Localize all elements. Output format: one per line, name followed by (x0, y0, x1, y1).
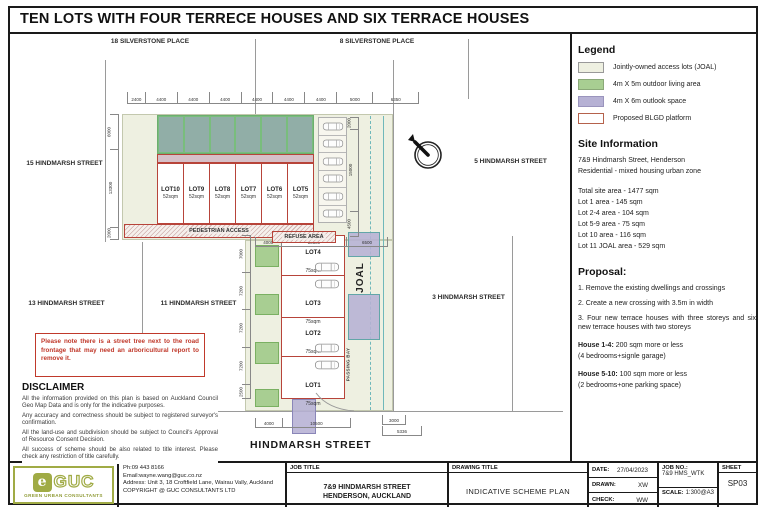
title-bar: TEN LOTS WITH FOUR TERRECE HOUSES AND SI… (10, 8, 756, 34)
lot-9: LOT952sqm (183, 164, 209, 223)
lot-name: LOT4 (305, 250, 320, 256)
house-spec-5-10: House 5-10: 100 sqm more or less (2 bedr… (578, 370, 756, 391)
dimension-label: 2000 (107, 228, 112, 238)
drawn-label: DRAWN: (592, 482, 616, 488)
dimension-label: 7200 (239, 361, 244, 371)
job-title-label: JOB TITLE (287, 463, 447, 473)
legend-heading: Legend (578, 44, 756, 56)
job-no-value: 7&9 HMS_WTK (662, 471, 714, 477)
car-icon (322, 122, 344, 131)
lot-name: LOT7 (241, 187, 256, 193)
dimension-segment: 7200 (242, 309, 251, 347)
outdoor-living-area (255, 389, 279, 407)
parking-stall (319, 118, 346, 136)
dimension-segment: 5000 (336, 92, 372, 104)
drawing-title-label: DRAWING TITLE (449, 463, 587, 473)
lot-area: 52sqm (163, 194, 178, 200)
legend-item-blgd: Proposed BLGD platform (578, 113, 756, 124)
dimension-label: 15000 (348, 164, 353, 177)
dimension-segment: 4400 (272, 92, 304, 104)
note-box: Please note there is a street tree next … (35, 333, 205, 377)
info-panel: Legend Jointly-owned access lots (JOAL) … (578, 38, 756, 393)
legend-item-outlook: 4m X 6m outlook space (578, 96, 756, 107)
outdoor-living-block (159, 117, 183, 152)
dimension-label: 6350 (373, 97, 418, 102)
blgd-swatch (578, 113, 604, 124)
check-label: CHECK: (592, 497, 615, 503)
outdoor-living-strip (157, 115, 314, 154)
dimension-segment: 2000 (350, 117, 359, 129)
lot-5: LOT552sqm (287, 164, 313, 223)
car-icon (314, 262, 340, 272)
date-label: DATE: (592, 467, 609, 473)
parking-stall (319, 136, 346, 154)
dimension-label: 3000 (383, 418, 405, 423)
outlook-space (348, 294, 380, 340)
refuse-area: REFUSE AREA (272, 231, 336, 243)
dimension-segment: 6000 (110, 114, 119, 149)
lot-name: LOT8 (215, 187, 230, 193)
dimension-col-left-upper: 6000133002000 (110, 114, 119, 240)
street-label-hindmarsh: HINDMARSH STREET (250, 439, 371, 451)
contact-address: Address: Unit 3, 18 Croftfield Lane, Wai… (123, 480, 281, 488)
dimension-col-right-upper: 2000150004500 (350, 117, 359, 237)
dimension-segment: 4400 (145, 92, 177, 104)
company-logo: GUC GREEN URBAN CONSULTANTS (13, 466, 114, 504)
legend-label: Jointly-owned access lots (JOAL) (613, 64, 716, 71)
job-title-line1: 7&9 HINDMARSH STREET (323, 483, 410, 492)
dimension-label: 2000 (347, 118, 352, 128)
joal-edge-line (383, 116, 384, 410)
panel-divider (570, 32, 572, 461)
date-value: 27/04/2023 (617, 467, 654, 474)
dimension-label: 4400 (146, 97, 177, 102)
dimension-segment: 10500 (282, 418, 351, 428)
car-icon (314, 360, 340, 370)
legend-label: Proposed BLGD platform (613, 115, 691, 122)
outdoor-living-area (255, 294, 279, 315)
boundary-line (512, 236, 513, 412)
car-icon (322, 174, 344, 183)
lot-name: LOT1 (305, 383, 320, 389)
site-area-line: Lot 1 area - 145 sqm (578, 197, 756, 208)
date-drawn-check-cell: DATE:27/04/2023 DRAWN:XW CHECK:WW (587, 463, 657, 507)
car-icon (322, 157, 344, 166)
dimension-segment: 7200 (242, 347, 251, 385)
house-spec-1-4: House 1-4: 200 sqm more or less (4 bedro… (578, 341, 756, 362)
job-title-cell: JOB TITLE 7&9 HINDMARSH STREET HENDERSON… (285, 463, 447, 507)
check-value: WW (636, 497, 654, 504)
logo-tagline: GREEN URBAN CONSULTANTS (24, 493, 103, 498)
dimension-label: 5000 (337, 97, 372, 102)
proposal-item: 1. Remove the existing dwellings and cro… (578, 284, 756, 294)
legend-item-joal: Jointly-owned access lots (JOAL) (578, 62, 756, 73)
dimension-label: 4400 (242, 97, 273, 102)
dimension-segment: 4400 (304, 92, 336, 104)
boundary-line (468, 39, 469, 99)
contact-phone: Ph:09 443 8166 (123, 465, 281, 473)
dimension-segment: 2000 (110, 227, 119, 240)
lot-area: 52sqm (293, 194, 308, 200)
dimension-segment: 3000 (382, 415, 406, 425)
job-title-line2: HENDERSON, AUCKLAND (323, 492, 411, 501)
lot-name: LOT5 (293, 187, 308, 193)
dimension-crossing-width: 3000 (382, 415, 406, 425)
dimension-segment: 6500 (346, 237, 388, 247)
joal-centerline (370, 116, 371, 410)
company-logo-cell: GUC GREEN URBAN CONSULTANTS (10, 463, 117, 507)
disclaimer-paragraph: All the land-use and subdivision should … (22, 430, 218, 445)
north-arrow-icon (406, 132, 446, 172)
dimension-segment: 6350 (372, 92, 419, 104)
driveway-curve (314, 392, 356, 414)
parking-stall (319, 188, 346, 206)
dimension-segment: 7200 (242, 272, 251, 310)
bottom-lot-column: LOT475sqm LOT375sqm LOT275sqm LOT175sqm (281, 235, 345, 399)
dimension-segment: 13300 (110, 149, 119, 226)
disclaimer-paragraph: All the information provided on this pla… (22, 396, 218, 411)
street-label-15-hindmarsh: 15 HINDMARSH STREET (22, 160, 107, 168)
lot-8: LOT852sqm (209, 164, 235, 223)
site-info-heading: Site Information (578, 138, 756, 150)
dimension-label: 4400 (305, 97, 336, 102)
boundary-line (105, 60, 106, 242)
title-block: GUC GREEN URBAN CONSULTANTS Ph:09 443 81… (10, 461, 756, 507)
dimension-label: 4000 (256, 421, 282, 426)
lot-name: LOT6 (267, 187, 282, 193)
drawn-value: XW (638, 482, 654, 489)
dimension-segment: 2400 (127, 92, 145, 104)
logo-text: GUC (54, 472, 95, 492)
proposal-item: 3. Four new terrace houses with three st… (578, 314, 756, 333)
lot-10: LOT1052sqm (158, 164, 183, 223)
site-area-line: Total site area - 1477 sqm (578, 186, 756, 197)
sheet-number: SP03 (719, 479, 756, 488)
dimension-segment: 4400 (209, 92, 241, 104)
dimension-label: 7200 (239, 323, 244, 333)
house-name: House 5-10: (578, 371, 618, 378)
parking-stall (319, 153, 346, 171)
refuse-area-label: REFUSE AREA (282, 234, 325, 240)
site-area-line: Lot 10 area - 116 sqm (578, 230, 756, 241)
drawing-sheet: TEN LOTS WITH FOUR TERRECE HOUSES AND SI… (8, 6, 758, 505)
car-icon (322, 139, 344, 148)
dimension-crossing-offset: 5336 (382, 426, 422, 436)
sheet-label: SHEET (719, 463, 756, 473)
outlook-swatch (578, 96, 604, 107)
outdoor-living-block (211, 117, 235, 152)
proposal-item: 2. Create a new crossing with 3.5m in wi… (578, 299, 756, 309)
dimension-label: 4400 (210, 97, 241, 102)
car-icon (314, 343, 340, 353)
street-label-18-silverstone: 18 SILVERSTONE PLACE (105, 38, 195, 46)
joal-swatch (578, 62, 604, 73)
dimension-row-top: 240044004400440044004400440050006350 (127, 92, 419, 104)
car-icon (314, 279, 340, 289)
outdoor-living-block (288, 117, 312, 152)
dimension-label: 4500 (347, 219, 352, 229)
lot-3: LOT375sqm (282, 275, 344, 317)
car-icon (322, 209, 344, 218)
legend-label: 4m X 6m outlook space (613, 98, 686, 105)
parking-area (318, 117, 347, 223)
outdoor-living-area (255, 245, 279, 267)
house-desc: 200 sqm more or less (616, 342, 683, 349)
street-label-13-hindmarsh: 13 HINDMARSH STREET (24, 300, 109, 308)
lot-name: LOT3 (305, 301, 320, 307)
dimension-label: 2400 (128, 97, 145, 102)
parking-stall (319, 171, 346, 189)
outlook-strip (157, 154, 314, 163)
outdoor-living-block (262, 117, 286, 152)
dimension-label: 10500 (283, 421, 350, 426)
house-desc: 100 sqm more or less (620, 371, 687, 378)
dimension-segment: 4500 (350, 211, 359, 237)
lot-6: LOT652sqm (261, 164, 287, 223)
lot-name: LOT10 (161, 187, 180, 193)
house-name: House 1-4: (578, 342, 614, 349)
scale-label: SCALE: (662, 490, 684, 496)
car-icon (322, 192, 344, 201)
contact-email: Email:wayne.wang@guc.co.nz (123, 473, 281, 481)
house-sub: (4 bedrooms+signle garage) (578, 352, 756, 362)
site-area-line: Lot 11 JOAL area - 529 sqm (578, 241, 756, 252)
guc-logo-icon (33, 473, 52, 492)
disclaimer-paragraph: Any accuracy and correctness should be s… (22, 413, 218, 428)
dimension-label: 4400 (273, 97, 304, 102)
lot-area: 52sqm (267, 194, 282, 200)
legend-item-outdoor: 4m X 5m outdoor living area (578, 79, 756, 90)
parking-stall (319, 206, 346, 223)
boundary-line (393, 60, 394, 411)
lot-name: LOT2 (305, 331, 320, 337)
dimension-label: 6000 (107, 127, 112, 137)
dimension-segment: 7000 (242, 235, 251, 272)
legend-label: 4m X 5m outdoor living area (613, 81, 701, 88)
proposal-heading: Proposal: (578, 266, 756, 278)
pedestrian-access-label: PEDESTRIAN ACCESS (187, 228, 251, 234)
scale-value: 1:300@A3 (686, 490, 714, 496)
site-area-line: Lot 2-4 area - 104 sqm (578, 208, 756, 219)
site-zoning: Residential - mixed housing urban zone (578, 166, 756, 177)
lot-area: 52sqm (241, 194, 256, 200)
page-title: TEN LOTS WITH FOUR TERRECE HOUSES AND SI… (20, 11, 756, 27)
drawing-title-value: INDICATIVE SCHEME PLAN (466, 487, 570, 496)
dimension-label: 2500 (239, 387, 244, 397)
lot-area: 52sqm (189, 194, 204, 200)
contact-copyright: COPYRIGHT @ GUC CONSULTANTS LTD (123, 488, 281, 496)
street-label-8-silverstone: 8 SILVERSTONE PLACE (332, 38, 422, 46)
dimension-label: 7200 (239, 286, 244, 296)
passing-bay-label: PASSING BAY (343, 338, 353, 390)
joal-label: JOAL (352, 254, 368, 300)
disclaimer-heading: DISCLAIMER (22, 382, 218, 393)
lot-name: LOT9 (189, 187, 204, 193)
outdoor-living-swatch (578, 79, 604, 90)
contact-cell: Ph:09 443 8166 Email:wayne.wang@guc.co.n… (117, 463, 285, 507)
outdoor-living-block (236, 117, 260, 152)
site-area-line: Lot 5-9 area - 75 sqm (578, 219, 756, 230)
dimension-label: 6500 (347, 240, 387, 245)
dimension-label: 5336 (383, 429, 421, 434)
dimension-segment: 4400 (241, 92, 273, 104)
disclaimer: DISCLAIMER All the information provided … (22, 382, 218, 464)
lot-7: LOT752sqm (235, 164, 261, 223)
outdoor-living-area (255, 342, 279, 364)
dimension-row-bottom: 400010500 (255, 418, 351, 428)
dimension-segment: 15000 (350, 129, 359, 211)
dimension-col-left-lower: 70007200720072002500 (242, 235, 251, 399)
job-no-scale-cell: JOB NO.: 7&9 HMS_WTK SCALE: 1:300@A3 (657, 463, 717, 507)
sheet-cell: SHEET SP03 (717, 463, 756, 507)
dimension-segment: 2500 (242, 384, 251, 399)
street-label-11-hindmarsh: 11 HINDMARSH STREET (156, 300, 241, 308)
dimension-segment: 4400 (177, 92, 209, 104)
top-lot-row: LOT1052sqm LOT952sqm LOT852sqm LOT752sqm… (157, 163, 314, 224)
disclaimer-paragraph: All success of scheme should be also rel… (22, 447, 218, 462)
outdoor-living-block (185, 117, 209, 152)
street-label-5-hindmarsh: 5 HINDMARSH STREET (468, 158, 553, 166)
site-address: 7&9 Hindmarsh Street, Henderson (578, 155, 756, 166)
lot-2: LOT275sqm (282, 317, 344, 357)
dimension-label: 4400 (178, 97, 209, 102)
dimension-segment: 5336 (382, 426, 422, 436)
dimension-label: 7000 (239, 249, 244, 259)
house-sub: (2 bedrooms+one parking space) (578, 381, 756, 391)
lot-area: 52sqm (215, 194, 230, 200)
dimension-segment: 4000 (255, 418, 282, 428)
dimension-label: 13300 (108, 182, 113, 195)
street-label-3-hindmarsh: 3 HINDMARSH STREET (426, 294, 511, 302)
drawing-title-cell: DRAWING TITLE INDICATIVE SCHEME PLAN (447, 463, 587, 507)
